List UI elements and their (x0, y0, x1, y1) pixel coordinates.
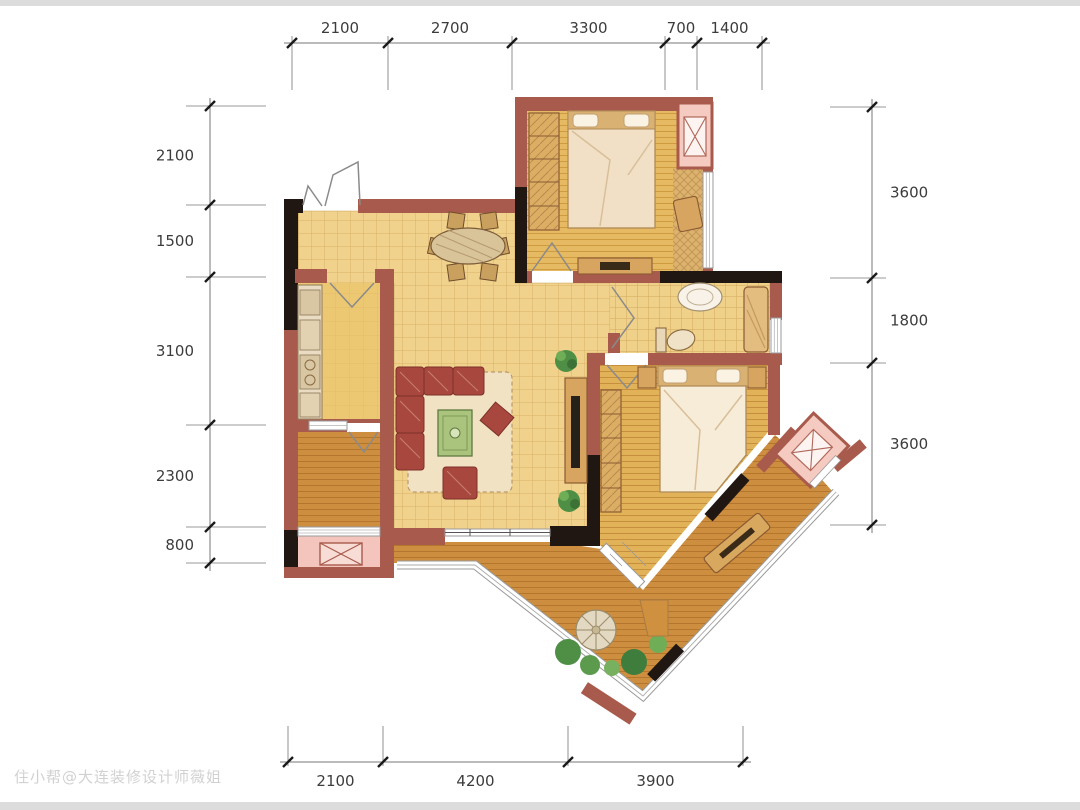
dimension-label: 2100 (316, 772, 354, 790)
dimension-label: 2100 (321, 19, 359, 37)
umbrella-table (576, 610, 616, 650)
bed (568, 111, 655, 228)
kitchen-counter (298, 285, 322, 419)
tv-cabinet (565, 378, 587, 483)
wardrobe (601, 390, 621, 512)
dimension-label: 3900 (636, 772, 674, 790)
floor-plan-page: 2100270033007001400210042003900210015003… (0, 0, 1080, 810)
dimension-label: 1500 (156, 232, 194, 250)
dimension-label: 2700 (431, 19, 469, 37)
dimension-label: 4200 (456, 772, 494, 790)
plant (555, 350, 577, 372)
dimension-label: 3100 (156, 342, 194, 360)
balcony-left (298, 536, 380, 568)
dimension-label: 3600 (890, 435, 928, 453)
dining-chair (480, 212, 498, 230)
window-bathroom-right (771, 318, 781, 353)
bathtub (744, 287, 768, 352)
dimension-label: 3600 (890, 184, 928, 202)
dimension-label: 700 (667, 19, 696, 37)
nightstand (638, 367, 656, 388)
sliding-door-living-terrace (445, 529, 550, 536)
window-kitchen-pass (309, 421, 347, 430)
pillow (716, 369, 740, 383)
dimension-label: 2100 (156, 147, 194, 165)
window-study-balcony (298, 527, 380, 536)
pillow (624, 114, 649, 127)
dimension-label: 1400 (710, 19, 748, 37)
wardrobe (529, 113, 559, 230)
window-bedroom1-right (703, 172, 713, 268)
watermark: 住小帮@大连装修设计师薇姐 (14, 766, 222, 787)
dimension-label: 800 (165, 536, 194, 554)
nightstand (748, 367, 766, 388)
dining-chair (480, 263, 498, 281)
dimension-label: 3300 (569, 19, 607, 37)
dining-chair (447, 263, 465, 281)
dimension-label: 1800 (890, 312, 928, 330)
dining-chair (447, 212, 465, 230)
ac-platform-bedroom1 (678, 103, 712, 168)
pillow (573, 114, 598, 127)
plant (558, 490, 580, 512)
coffee-table (438, 410, 472, 456)
floor-plan-drawing: 2100270033007001400210042003900210015003… (0, 0, 1080, 810)
entry-door-leaf-small (303, 186, 322, 206)
pillow (663, 369, 687, 383)
kitchen-sink (300, 290, 320, 315)
sink (678, 283, 722, 311)
bed (658, 366, 748, 492)
tv (571, 396, 580, 468)
dimension-label: 2300 (156, 467, 194, 485)
entry-door-leaf-large (325, 162, 360, 206)
dresser-inset (600, 262, 630, 270)
